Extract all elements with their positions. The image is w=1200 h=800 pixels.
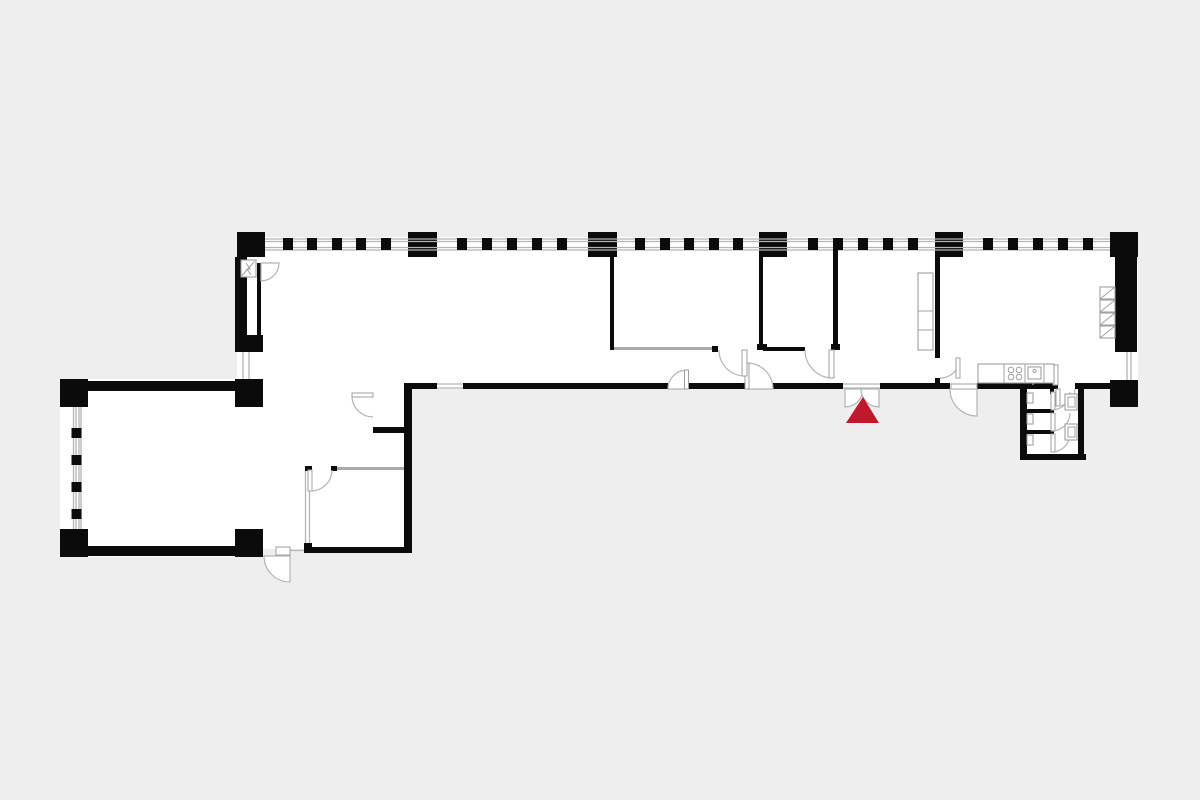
window-mullion xyxy=(457,238,467,250)
left-room-exterior-door-swing-icon xyxy=(264,547,290,582)
wardrobe xyxy=(918,273,933,350)
south-wall xyxy=(463,383,668,389)
connector-east-wall xyxy=(404,433,412,553)
connector-south-wall xyxy=(310,547,412,553)
column xyxy=(235,529,263,557)
window-mullion xyxy=(381,238,391,250)
window-mullion xyxy=(507,238,517,250)
east-wall xyxy=(1115,255,1137,352)
left-room-north-wall xyxy=(88,381,235,391)
window-mullion xyxy=(532,238,542,250)
column xyxy=(759,232,787,257)
niche-east-wall xyxy=(404,389,412,433)
kitchen-counter xyxy=(978,364,1054,383)
window-mullion xyxy=(733,238,743,250)
partition-room1-west xyxy=(610,255,614,350)
window-mullion xyxy=(482,238,492,250)
column xyxy=(60,529,88,557)
column xyxy=(1110,232,1138,257)
window-mullion xyxy=(1083,238,1093,250)
niche-south-wall xyxy=(373,427,412,433)
appliance-stack-icons xyxy=(1100,287,1115,338)
window-mullion xyxy=(72,509,82,519)
toilet-icon xyxy=(1065,394,1077,410)
south-wall xyxy=(977,383,1058,389)
window-mullion xyxy=(1033,238,1043,250)
hand-basin-icon xyxy=(1027,435,1033,445)
window-mullion xyxy=(908,238,918,250)
south-wall xyxy=(1075,383,1112,389)
sink-icon xyxy=(1028,367,1041,379)
column xyxy=(1110,380,1138,407)
window-mullion xyxy=(709,238,719,250)
window-mullion xyxy=(833,238,843,250)
window-mullion xyxy=(72,428,82,438)
floor-plan-drawing xyxy=(0,0,1200,800)
south-wall xyxy=(404,383,437,389)
column xyxy=(60,379,88,407)
window-mullion xyxy=(858,238,868,250)
window-mullion xyxy=(557,238,567,250)
column xyxy=(235,379,263,407)
window-mullion xyxy=(660,238,670,250)
wall-cap xyxy=(935,378,940,389)
column xyxy=(408,232,437,257)
hand-basin-icon xyxy=(1027,414,1033,424)
partition-room2-south xyxy=(763,347,805,351)
window-mullion xyxy=(332,238,342,250)
window-mullion xyxy=(1008,238,1018,250)
column xyxy=(588,232,617,257)
south-wall xyxy=(773,383,843,389)
toilet-icon xyxy=(1065,424,1077,440)
window-mullion xyxy=(635,238,645,250)
window-mullion xyxy=(883,238,893,250)
window-mullion xyxy=(72,455,82,465)
window-mullion xyxy=(356,238,366,250)
window-mullion xyxy=(283,238,293,250)
column xyxy=(237,232,265,257)
window-mullion xyxy=(1058,238,1068,250)
column xyxy=(935,232,963,257)
window-mullion xyxy=(684,238,694,250)
partition-room2-east xyxy=(833,250,838,350)
window-mullion xyxy=(808,238,818,250)
partition-hall-east xyxy=(935,257,940,358)
shaft-symbol-icon xyxy=(241,260,256,277)
wall-cap xyxy=(712,346,718,352)
window-mullion xyxy=(72,482,82,492)
left-room-south-wall xyxy=(88,546,235,556)
floor-plan-canvas xyxy=(0,0,1200,800)
window-mullion xyxy=(983,238,993,250)
kitchen-south-door-swing-icon xyxy=(950,384,977,416)
south-wall xyxy=(687,383,747,389)
left-room-floor xyxy=(60,379,263,557)
window-mullion xyxy=(307,238,317,250)
wall-cap xyxy=(831,344,840,350)
hand-basin-icon xyxy=(1027,393,1033,403)
partition-room1-east xyxy=(759,257,763,350)
